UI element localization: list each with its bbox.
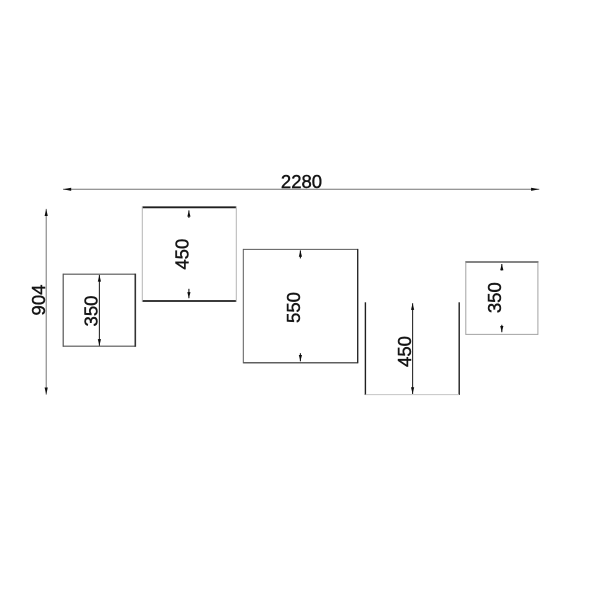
- svg-text:350: 350: [81, 296, 102, 327]
- svg-text:450: 450: [172, 239, 193, 270]
- svg-text:450: 450: [394, 336, 415, 367]
- svg-text:550: 550: [283, 292, 304, 323]
- svg-text:2280: 2280: [281, 171, 322, 192]
- svg-text:904: 904: [28, 285, 49, 316]
- svg-text:350: 350: [484, 282, 505, 313]
